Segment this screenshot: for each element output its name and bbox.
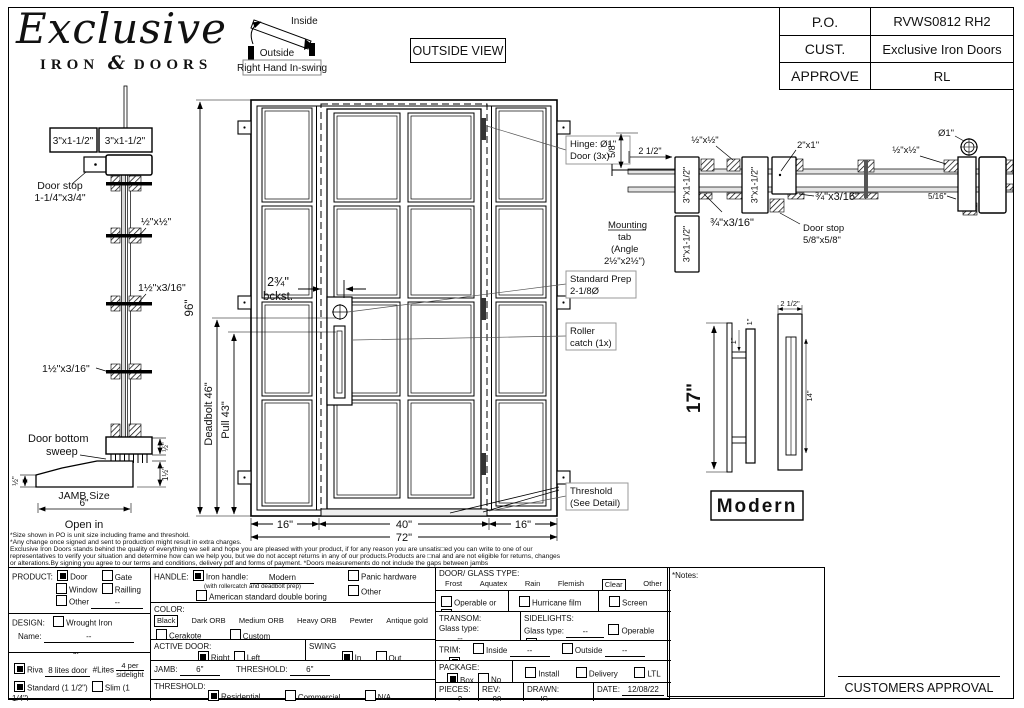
product-gate-label: Gate [115, 573, 132, 582]
notes-label: *Notes: [672, 571, 698, 580]
date-section: DATE: 12/08/22 [594, 683, 671, 701]
threshold-commercial-label: Commercial [298, 693, 341, 702]
swing-out-label: Out [389, 654, 402, 662]
glass-rain-option[interactable]: Rain [525, 579, 540, 591]
handle-panic-checkbox[interactable] [348, 570, 359, 581]
install-label: Install [538, 670, 559, 679]
riva-label: Riva [27, 666, 43, 675]
trim-outside-checkbox[interactable] [562, 643, 573, 654]
color-cerakote-checkbox[interactable] [156, 629, 167, 640]
color-custom-label: Custom [243, 632, 271, 641]
jamb-section: JAMB: 6" THRESHOLD: 6" [151, 661, 436, 680]
package-section: PACKAGE: Box No box [436, 661, 513, 683]
design-section: DESIGN: Wrought Iron Name: -- [9, 614, 151, 653]
sidelights-glasstype-value[interactable]: -- [566, 627, 604, 638]
product-window-checkbox[interactable] [56, 583, 67, 594]
order-form: PRODUCT: Door Gate Window Railling Other… [8, 567, 670, 700]
disclaimer-line: *Size shown in PO is unit size including… [10, 532, 570, 539]
glass-aquatex-option[interactable]: Aquatex [480, 579, 508, 591]
jamb-label: JAMB: [154, 665, 178, 674]
threshold-na-value[interactable] [391, 699, 423, 700]
product-window-label: Window [69, 585, 97, 594]
handle-section: HANDLE: Iron handle: Modern (with roller… [151, 568, 436, 603]
screen-checkbox[interactable] [609, 596, 620, 607]
active-door-label: ACTIVE DOOR: [154, 642, 211, 651]
po-label: P.O. [780, 8, 870, 35]
color-antique-option[interactable]: Antique gold [386, 616, 428, 626]
sidelights-label: SIDELIGHTS: [524, 614, 668, 624]
glass-type-section: DOOR/ GLASS TYPE: Frost Aquatex Rain Fle… [436, 568, 671, 591]
active-right-checkbox[interactable] [198, 651, 209, 661]
rev-label: REV: [482, 685, 500, 694]
disclaimer-line: *Any change once signed and sent to prod… [10, 539, 570, 546]
jamb-threshold-value[interactable]: 6" [290, 665, 330, 676]
hurricane-checkbox[interactable] [519, 596, 530, 607]
swing-section: SWING In Out [306, 640, 436, 661]
color-section: COLOR: Black Dark ORB Medium ORB Heavy O… [151, 603, 436, 640]
glass-type-label: DOOR/ GLASS TYPE: [439, 569, 668, 579]
swing-in-label: In [355, 654, 362, 662]
product-gate-checkbox[interactable] [102, 570, 113, 581]
disclaimer-line: representatives to verify your situation… [10, 553, 570, 560]
product-door-label: Door [70, 573, 87, 582]
rev-value[interactable]: 00 [482, 695, 512, 701]
color-darkorb-option[interactable]: Dark ORB [192, 616, 226, 626]
handle-american-label: American standard double boring [209, 593, 327, 602]
glass-clear-option[interactable]: Clear [602, 579, 626, 591]
signature-line[interactable] [838, 676, 1000, 677]
active-door-section: ACTIVE DOOR: Right Left [151, 640, 306, 661]
threshold-section: THRESHOLD: Residential Commercial N/A [151, 680, 436, 701]
disclaimer: *Size shown in PO is unit size including… [10, 532, 570, 567]
ltl-checkbox[interactable] [634, 667, 645, 678]
riva-section: or Riva 8 lites door #Lites 4 persidelig… [9, 653, 151, 701]
design-or-label: or [72, 653, 79, 656]
design-name-label: Name: [18, 632, 42, 641]
jamb-value[interactable]: 6" [180, 665, 220, 676]
outside-view-label: OUTSIDE VIEW [410, 38, 506, 63]
package-nobox-checkbox[interactable] [478, 673, 489, 683]
trim-label: TRIM: [439, 646, 461, 655]
trim-inside-checkbox[interactable] [473, 643, 484, 654]
notes-box[interactable]: *Notes: [667, 567, 825, 697]
logo-ampersand-icon: & [108, 52, 125, 74]
logo-doors: DOORS [134, 57, 212, 73]
design-wrought-checkbox[interactable] [53, 616, 64, 627]
threshold-residential-checkbox[interactable] [208, 690, 219, 701]
color-heavyorb-option[interactable]: Heavy ORB [297, 616, 337, 626]
glass-frost-option[interactable]: Frost [445, 579, 462, 591]
riva-lites-value[interactable]: 8 lites door [45, 666, 90, 677]
trim-inside-value[interactable]: -- [510, 646, 550, 657]
operable-or-label: or [489, 599, 496, 608]
rev-section: REV: 00 [479, 683, 524, 701]
po-table: P.O. RVWS0812 RH2 CUST. Exclusive Iron D… [779, 7, 1014, 90]
color-mediumorb-option[interactable]: Medium ORB [239, 616, 284, 626]
pieces-label: PIECES: [439, 685, 471, 694]
threshold-na-checkbox[interactable] [365, 690, 376, 701]
handle-iron-value[interactable]: Modern [250, 573, 314, 584]
riva-hash-label: #Lites [93, 666, 114, 675]
order-sheet: Inside Outside Right Hand In-swing [0, 0, 1024, 708]
package-box-checkbox[interactable] [447, 673, 458, 683]
pieces-value[interactable]: 2 [445, 695, 475, 701]
hurricane-section: Hurricane film [509, 591, 599, 612]
swing-in-checkbox[interactable] [342, 651, 353, 661]
disclaimer-line: Exclusive Iron Doors stands behind the q… [10, 546, 570, 553]
pieces-section: PIECES: 2 [436, 683, 479, 701]
color-label: COLOR: [154, 605, 432, 615]
operable-fixed-section: Operable or Fixed [436, 591, 509, 612]
cust-label: CUST. [780, 35, 870, 62]
approve-value: RL [870, 62, 1013, 89]
design-name-value[interactable]: -- [44, 632, 134, 643]
riva-checkbox[interactable] [14, 663, 25, 674]
package-box-label: Box [460, 676, 474, 684]
delivery-section: Install Delivery LTL [513, 661, 671, 683]
trim-outside-label: Outside [575, 646, 603, 655]
handle-american-checkbox[interactable] [196, 590, 207, 601]
standard-label: Standard (1 1/2") [27, 684, 88, 693]
product-other-checkbox[interactable] [56, 595, 67, 606]
approve-label: APPROVE [780, 62, 870, 89]
handle-label: HANDLE: [154, 573, 189, 582]
transom-label: TRANSOM: [439, 614, 517, 624]
active-left-label: Left [247, 654, 260, 662]
trim-section: TRIM: Inside -- Outside -- N/A [436, 641, 671, 661]
sidelights-glasstype-label: Glass type: [524, 627, 564, 636]
slim-checkbox[interactable] [92, 681, 103, 692]
product-section: PRODUCT: Door Gate Window Railling Other… [9, 568, 151, 614]
active-right-label: Right [211, 654, 230, 662]
color-cerakote-label: Cerakote [169, 632, 201, 641]
product-other-label: Other [69, 598, 89, 607]
screen-section: Screen [599, 591, 671, 612]
jamb-threshold-label: THRESHOLD: [236, 665, 288, 674]
transom-glasstype-value[interactable]: -- [439, 634, 481, 641]
logo-iron: IRON [40, 57, 99, 73]
logo-script: Exclusive [16, 4, 227, 53]
glass-flemish-option[interactable]: Flemish [558, 579, 584, 591]
handle-iron-label: Iron handle: [206, 573, 248, 582]
transom-glasstype-label: Glass type: [439, 624, 479, 633]
drawn-section: DRAWN: IS [524, 683, 594, 701]
active-left-checkbox[interactable] [234, 651, 245, 661]
product-other-value[interactable]: -- [91, 598, 143, 609]
cust-value: Exclusive Iron Doors [870, 35, 1013, 62]
threshold-commercial-checkbox[interactable] [285, 690, 296, 701]
swing-label: SWING [309, 642, 336, 651]
date-value[interactable]: 12/08/22 [622, 685, 664, 696]
standard-checkbox[interactable] [14, 681, 25, 692]
product-railing-label: Railling [115, 585, 141, 594]
handle-other-checkbox[interactable] [348, 585, 359, 596]
drawn-value[interactable]: IS [527, 695, 561, 701]
riva-per2-label: sidelight [116, 670, 144, 679]
operable-label: Operable [454, 599, 487, 608]
delivery-checkbox[interactable] [576, 667, 587, 678]
ltl-label: LTL [647, 670, 660, 679]
color-pewter-option[interactable]: Pewter [350, 616, 373, 626]
design-wrought-label: Wrought Iron [66, 619, 112, 628]
trim-outside-value[interactable]: -- [605, 646, 645, 657]
sidelights-section: SIDELIGHTS: Glass type: -- Operable Fixe… [521, 612, 671, 641]
operable-checkbox[interactable] [441, 596, 452, 607]
product-door-checkbox[interactable] [57, 570, 68, 581]
po-value: RVWS0812 RH2 [870, 8, 1013, 35]
color-custom-checkbox[interactable] [230, 629, 241, 640]
trim-inside-label: Inside [486, 646, 507, 655]
glass-other-option[interactable]: Other [643, 579, 662, 591]
logo-wordmark: IRON & DOORS [40, 52, 212, 74]
sidelights-operable-checkbox[interactable] [608, 624, 619, 635]
product-label: PRODUCT: [12, 573, 53, 582]
package-label: PACKAGE: [439, 663, 509, 673]
color-black-option[interactable]: Black [154, 615, 178, 627]
date-label: DATE: [597, 685, 620, 694]
drawn-label: DRAWN: [527, 685, 559, 694]
transom-section: TRANSOM: Glass type: -- [436, 612, 521, 641]
handle-other-label: Other [361, 587, 381, 596]
threshold-label: THRESHOLD: [154, 682, 206, 691]
delivery-label: Delivery [589, 670, 618, 679]
sidelights-operable-label: Operable [621, 627, 654, 636]
hurricane-label: Hurricane film [532, 599, 581, 608]
threshold-na-label: N/A [378, 693, 391, 702]
install-checkbox[interactable] [525, 667, 536, 678]
swing-out-checkbox[interactable] [376, 651, 387, 661]
handle-panic-label: Panic hardware [361, 573, 417, 582]
handle-iron-checkbox[interactable] [193, 570, 204, 581]
customers-approval-label: CUSTOMERS APPROVAL [838, 681, 1000, 695]
design-label: DESIGN: [12, 619, 45, 628]
product-railing-checkbox[interactable] [102, 583, 113, 594]
threshold-residential-label: Residential [221, 693, 261, 702]
screen-label: Screen [622, 599, 647, 608]
